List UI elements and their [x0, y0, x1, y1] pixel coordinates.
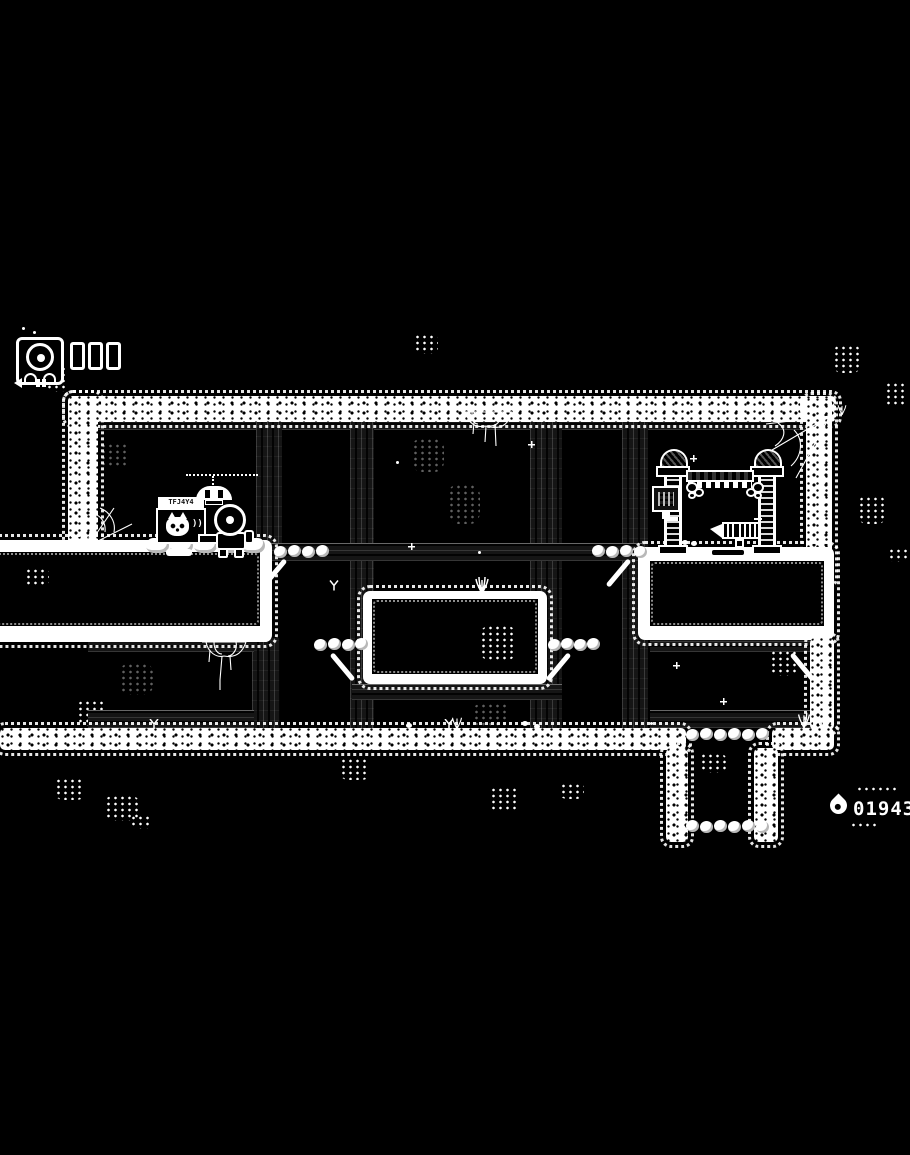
- steam-puff-icon: [754, 492, 762, 499]
- pebble-debris: [691, 541, 697, 546]
- pebble: [700, 728, 713, 740]
- cart-nozzle: [710, 524, 722, 538]
- speckle-patch: [490, 787, 518, 811]
- steam-puff-icon: [688, 492, 696, 499]
- wood-pillar: [252, 638, 280, 730]
- gate-crossbeam: [686, 470, 754, 482]
- dart-projectile-icon: [16, 379, 44, 389]
- pebble: [756, 821, 769, 833]
- sparkle-icon: [408, 543, 415, 550]
- cobweb-icon: [200, 640, 248, 692]
- mech-helmet-icon: [26, 343, 54, 371]
- gate-lamp-icon: [660, 449, 688, 466]
- root-sprout: [443, 719, 455, 729]
- pebble: [592, 545, 605, 557]
- wood-pillar: [256, 420, 282, 546]
- pebble: [328, 638, 341, 650]
- speckle-patch: [560, 783, 584, 799]
- water-counter-value: 01943: [853, 798, 910, 820]
- wall-monitor: [652, 486, 680, 512]
- pebble: [728, 821, 741, 833]
- cart-antenna: [754, 518, 762, 520]
- speckle-patch: [833, 345, 861, 373]
- sign-base: [166, 549, 192, 556]
- helmet-eye: [37, 354, 45, 362]
- speckle-patch: [130, 815, 152, 829]
- shaft-left-wall: [666, 748, 688, 842]
- pebble: [686, 729, 699, 741]
- gate-floor-dirt-block: [638, 547, 834, 640]
- pebble: [742, 820, 755, 832]
- hud-dot: [22, 327, 25, 330]
- pebble: [548, 639, 561, 651]
- sound-wave-glyph: )): [192, 519, 203, 529]
- lamp-wire: [186, 474, 258, 476]
- pebble: [302, 546, 315, 558]
- mech-cannon: [198, 534, 218, 544]
- pebble-debris: [406, 723, 412, 728]
- pebble: [714, 729, 727, 741]
- sparkle-icon: [690, 455, 697, 462]
- wood-beam: [88, 710, 254, 728]
- gate-capital: [656, 466, 690, 477]
- speckle-patch: [340, 758, 370, 780]
- pebble: [574, 639, 587, 651]
- pebble: [355, 638, 368, 650]
- speckle-patch: [55, 778, 85, 800]
- gate-pillar-base: [658, 545, 688, 555]
- player-mech: [206, 504, 258, 560]
- speckle-patch: [885, 382, 907, 406]
- pebble: [342, 639, 355, 651]
- pebble: [620, 545, 633, 557]
- pebble: [314, 639, 327, 651]
- speckle-patch: [858, 496, 886, 524]
- gate-pillar-base: [752, 545, 782, 555]
- pebble: [561, 638, 574, 650]
- dust-patch: [448, 484, 480, 524]
- pebble: [700, 821, 713, 833]
- speckle-patch: [25, 568, 49, 586]
- top-wall: [68, 396, 836, 422]
- pebble: [606, 546, 619, 558]
- lower-floor: [0, 728, 686, 750]
- grass-tuft: [474, 574, 490, 594]
- root-sprout: [148, 719, 160, 729]
- dust-patch: [412, 438, 444, 472]
- pebble: [756, 728, 769, 740]
- pebble: [714, 820, 727, 832]
- speckle-patch: [414, 334, 438, 354]
- mech-head: [214, 504, 246, 536]
- cobweb-icon: [86, 500, 136, 548]
- speckle-patch: [888, 548, 908, 562]
- room-right-wall: [810, 638, 834, 730]
- pebble-debris: [534, 724, 540, 729]
- monitor-arm: [666, 517, 678, 521]
- sign-header: TFJ4Y4: [158, 497, 204, 508]
- gate-capital: [750, 466, 784, 477]
- floor-plate: [710, 548, 746, 557]
- grass-tuft: [796, 710, 812, 728]
- lower-floor: [772, 728, 834, 750]
- monitor-static: [658, 492, 674, 506]
- pebble: [288, 545, 301, 557]
- mech-eye: [226, 516, 234, 524]
- counter-decor-dots: [850, 822, 878, 829]
- mech-leg: [218, 548, 228, 558]
- sparkle-icon: [720, 698, 727, 705]
- pebble: [742, 729, 755, 741]
- pebble: [728, 728, 741, 740]
- mech-backpack: [244, 530, 254, 544]
- dust-patch: [120, 663, 153, 695]
- sparkle-dot: [396, 461, 399, 464]
- pebble-debris: [522, 721, 528, 726]
- mine-cart: [722, 522, 760, 539]
- grass-tuft: [836, 402, 848, 415]
- game-viewport: TFJ4Y4 )): [0, 0, 910, 1155]
- pebble: [274, 546, 287, 558]
- root-sprout: [328, 580, 340, 591]
- wood-beam-island: [352, 684, 562, 700]
- health-cell: [70, 342, 85, 370]
- mech-leg: [234, 548, 244, 558]
- sparkle-icon: [528, 441, 535, 448]
- speckle-patch: [480, 625, 516, 661]
- wood-beam: [650, 710, 812, 728]
- water-drop-icon: [826, 793, 850, 817]
- sparkle-icon: [673, 662, 680, 669]
- floating-island: [363, 591, 547, 684]
- pebble: [316, 545, 329, 557]
- health-cell: [88, 342, 103, 370]
- pebble: [587, 638, 600, 650]
- hud-portrait-frame: [16, 337, 64, 385]
- pebble: [634, 546, 647, 558]
- cat-face-icon: [166, 517, 189, 536]
- cobweb-icon: [462, 410, 514, 456]
- sparkle-dot: [478, 551, 481, 554]
- hud-dot: [33, 331, 36, 334]
- dust-patch: [473, 703, 510, 727]
- health-cell: [106, 342, 121, 370]
- pebble: [686, 820, 699, 832]
- counter-decor-dots: [856, 786, 896, 793]
- sparkle-dot: [650, 722, 653, 725]
- cart-pedestal: [735, 539, 744, 548]
- dust-patch: [100, 443, 130, 467]
- speckle-patch: [700, 753, 726, 773]
